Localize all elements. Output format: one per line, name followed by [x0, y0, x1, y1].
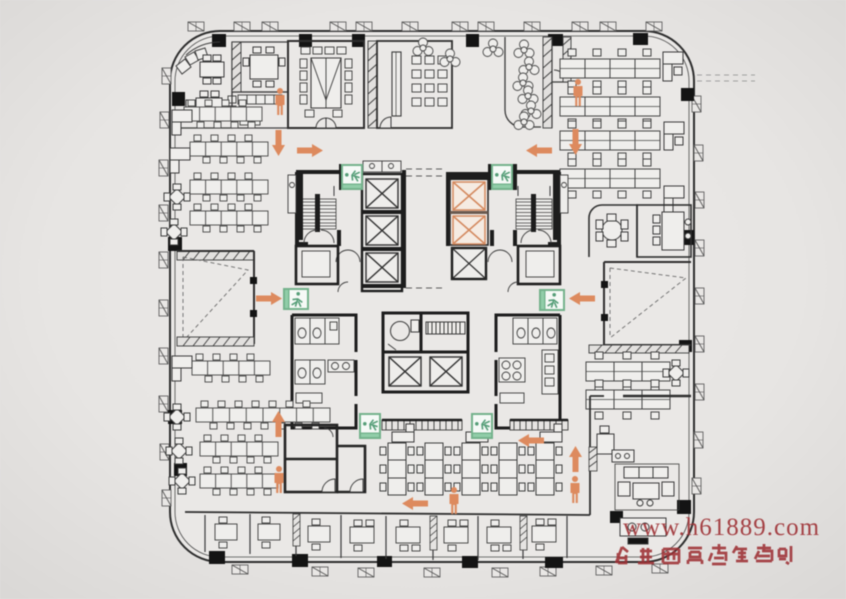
svg-text:www.h61889.com: www.h61889.com [623, 514, 820, 541]
